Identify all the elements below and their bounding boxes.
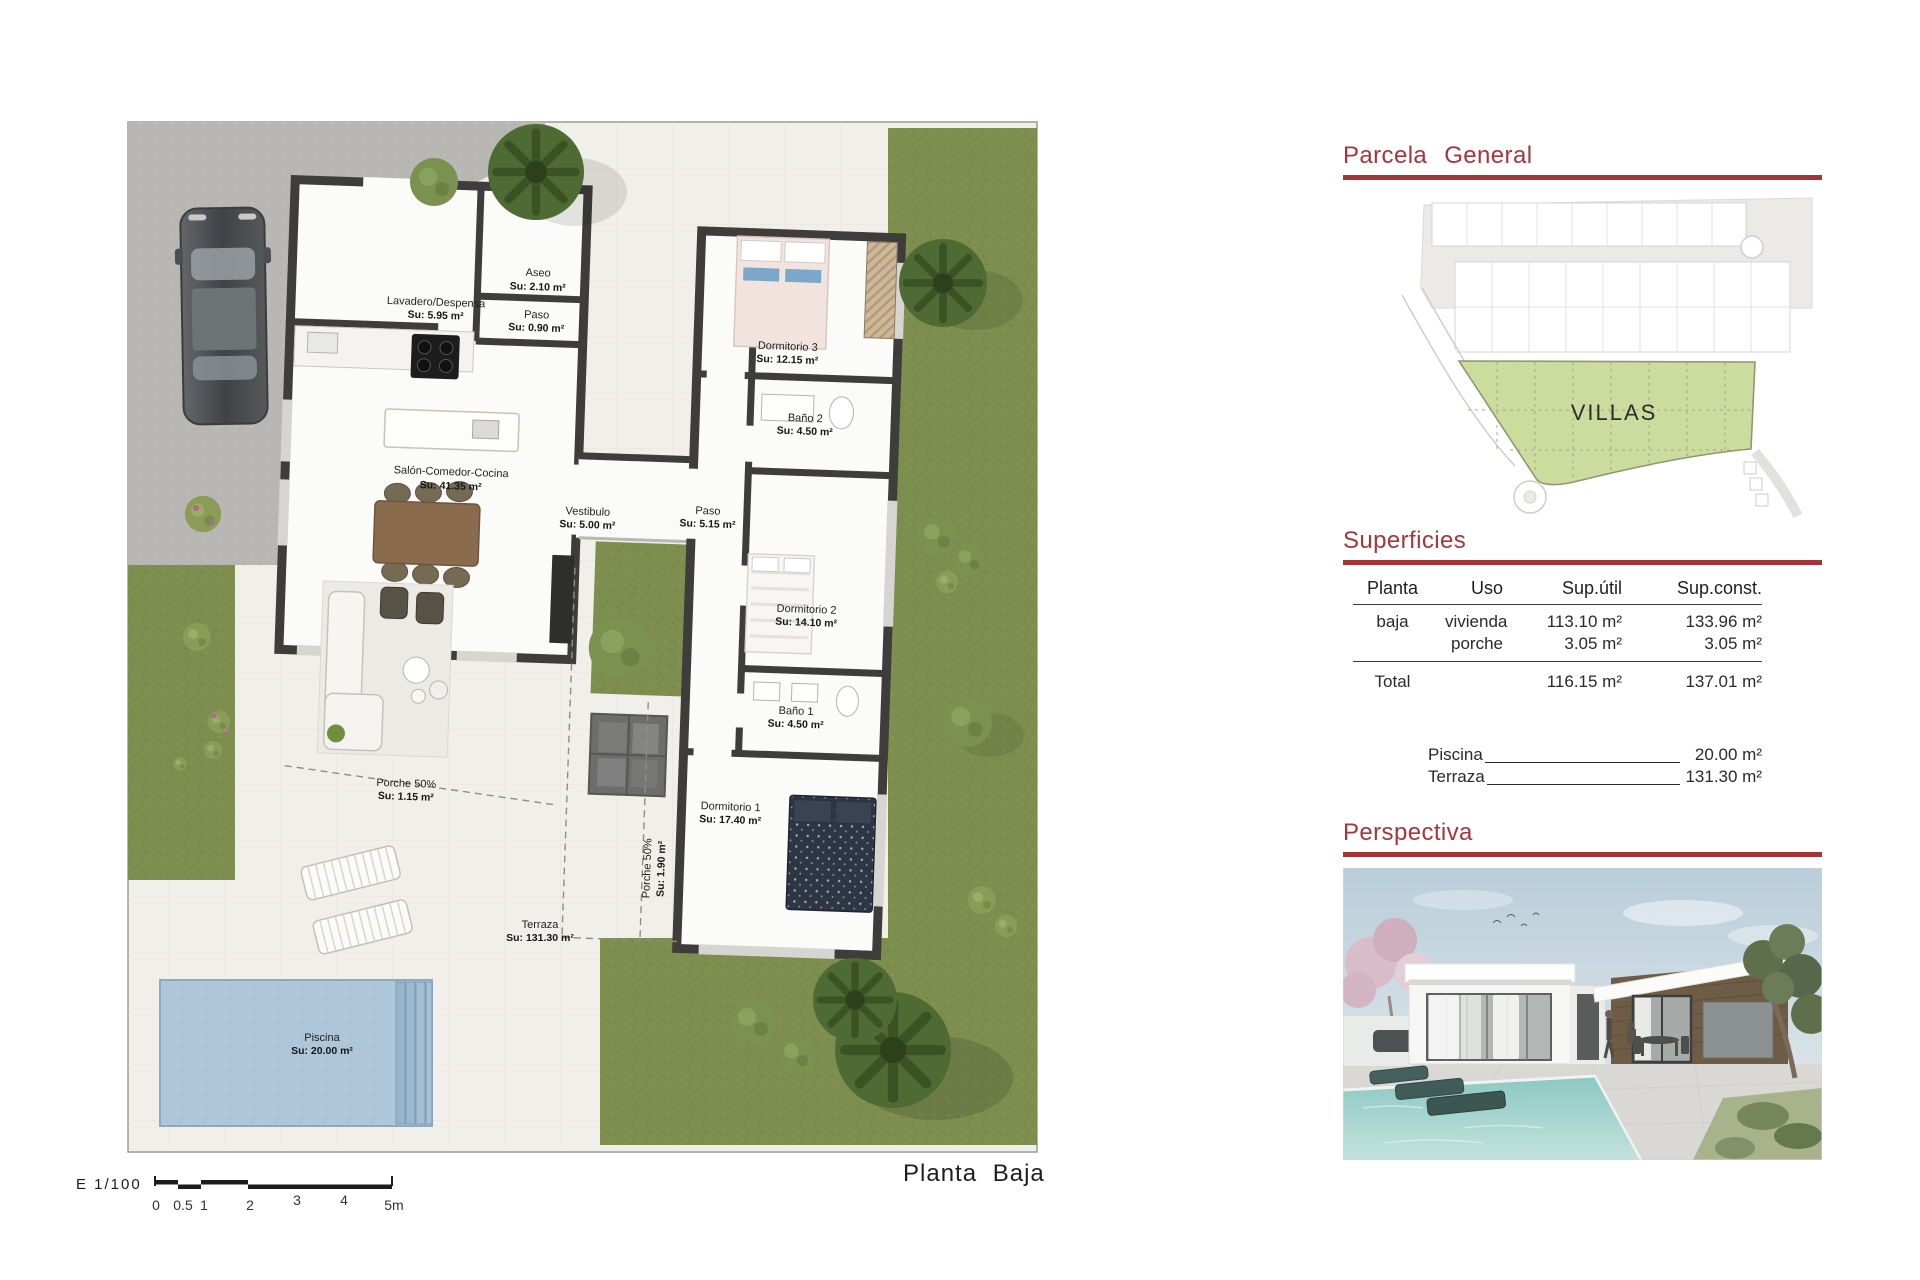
superficies-heading: Superficies [1343,528,1822,565]
scale-tick: 4 [340,1192,348,1208]
cooktop [410,334,460,380]
col-header-planta: Planta [1340,578,1445,599]
scale-tick: 3 [293,1192,301,1208]
room-area: Su: 14.10 m² [775,616,838,630]
scale-tick: 2 [246,1197,254,1213]
extras-block: Piscina 20.00 m² Terraza 131.30 m² [1340,744,1762,788]
room-label: Aseo [525,267,550,280]
room-area: Su: 4.50 m² [777,425,834,439]
table-row: porche 3.05 m² 3.05 m² [1340,633,1762,655]
room-label: Dormitorio 3 [758,340,818,354]
room-label: Paso [695,505,720,518]
room-area: Su: 1.90 m² [654,840,668,897]
scale-bar: E 1/100 0 0.5 1 2 3 4 5m [76,1176,404,1213]
extra-row-piscina: Piscina 20.00 m² [1340,744,1762,766]
cell-planta: baja [1340,611,1445,633]
scale-tick: 1 [200,1197,208,1213]
extra-label: Terraza [1428,766,1485,788]
table-total-row: Total 116.15 m² 137.01 m² [1340,662,1762,694]
white-villa [1405,964,1575,1064]
total-util: 116.15 m² [1540,672,1622,692]
room-label: Vestibulo [565,505,610,519]
plan-sheet: Lavadero/Despensa Su: 5.95 m² Aseo Su: 2… [0,0,1920,1280]
superficies-table: Planta Uso Sup.útil Sup.const. baja vivi… [1340,578,1762,788]
villas-label: VILLAS [1571,400,1658,425]
scale-tick: 5m [384,1197,403,1213]
pool-foreground [1343,1076,1641,1160]
buildings-block [1420,198,1812,352]
extra-value: 131.30 m² [1680,766,1762,788]
room-label: Porche 50% [376,777,437,791]
scale-label: E 1/100 [76,1176,142,1193]
villas-parcel: VILLAS [1459,361,1755,485]
col-header-sup-const: Sup.const. [1622,578,1762,599]
palm-tree [488,124,584,220]
perspectiva-heading: Perspectiva [1343,820,1822,857]
parcela-heading: Parcela General [1343,143,1822,180]
room-label: Piscina [304,1032,340,1044]
total-label: Total [1340,672,1445,692]
cell-uso: porche [1445,633,1540,655]
room-area: Su: 5.15 m² [679,517,736,531]
room-label: Baño 2 [788,412,823,425]
room-area: Su: 41.35 m² [420,479,483,493]
dotted-line [1485,762,1680,763]
cell-uso: vivienda [1445,611,1540,633]
curtain [1429,995,1459,1059]
room-label: Dormitorio 1 [700,800,760,814]
col-header-uso: Uso [1445,578,1540,599]
patio-table [589,714,668,797]
total-const: 137.01 m² [1622,672,1762,692]
dotted-line [1487,784,1680,785]
plan-title: Planta Baja [903,1160,1045,1188]
room-area: Su: 1.15 m² [378,790,435,804]
table-row: baja vivienda 113.10 m² 133.96 m² [1340,605,1762,633]
room-label: Porche 50% [640,838,654,899]
extra-value: 20.00 m² [1680,744,1762,766]
dining-table [372,479,481,589]
curtain [1493,995,1519,1059]
room-area: Su: 0.90 m² [508,321,565,335]
room-area: Su: 131.30 m² [506,932,574,944]
room-label: Baño 1 [778,705,813,718]
bed-dormitorio-3 [734,236,830,349]
room-label: Paso [524,309,549,322]
room-label: Dormitorio 2 [776,603,836,617]
parcela-map: VILLAS [1340,185,1830,535]
room-label: Terraza [522,919,560,931]
bed-dormitorio-1 [786,795,876,912]
sofa-area [317,581,453,757]
col-header-sup-util: Sup.útil [1540,578,1622,599]
room-area: Su: 4.50 m² [767,717,824,731]
cell-util: 113.10 m² [1540,611,1622,633]
table-header-row: Planta Uso Sup.útil Sup.const. [1340,578,1762,604]
curtain [1461,995,1481,1059]
cell-const: 3.05 m² [1622,633,1762,655]
cell-const: 133.96 m² [1622,611,1762,633]
scale-tick: 0 [152,1197,160,1213]
palm-tree [813,958,897,1042]
extra-row-terraza: Terraza 131.30 m² [1340,766,1762,788]
perspective-render [1343,868,1822,1160]
wardrobe [549,555,574,644]
scale-tick: 0.5 [173,1197,193,1213]
room-area: Su: 17.40 m² [699,813,762,827]
courtyard-tree [589,617,651,679]
room-area: Su: 12.15 m² [756,353,819,367]
cell-util: 3.05 m² [1540,633,1622,655]
palm-tree [899,239,987,327]
car [174,207,274,425]
room-area: Su: 2.10 m² [509,280,566,294]
room-area: Su: 5.95 m² [407,309,464,323]
extra-label: Piscina [1428,744,1483,766]
room-area: Su: 5.00 m² [559,518,616,532]
floor-plan: Lavadero/Despensa Su: 5.95 m² Aseo Su: 2… [0,0,1080,1280]
room-area: Su: 20.00 m² [291,1045,353,1057]
